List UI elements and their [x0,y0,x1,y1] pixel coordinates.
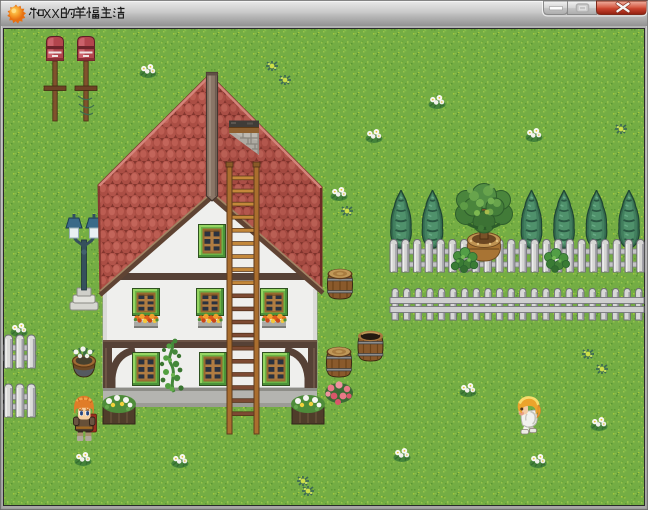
svg-text:XX: XX [43,7,60,21]
